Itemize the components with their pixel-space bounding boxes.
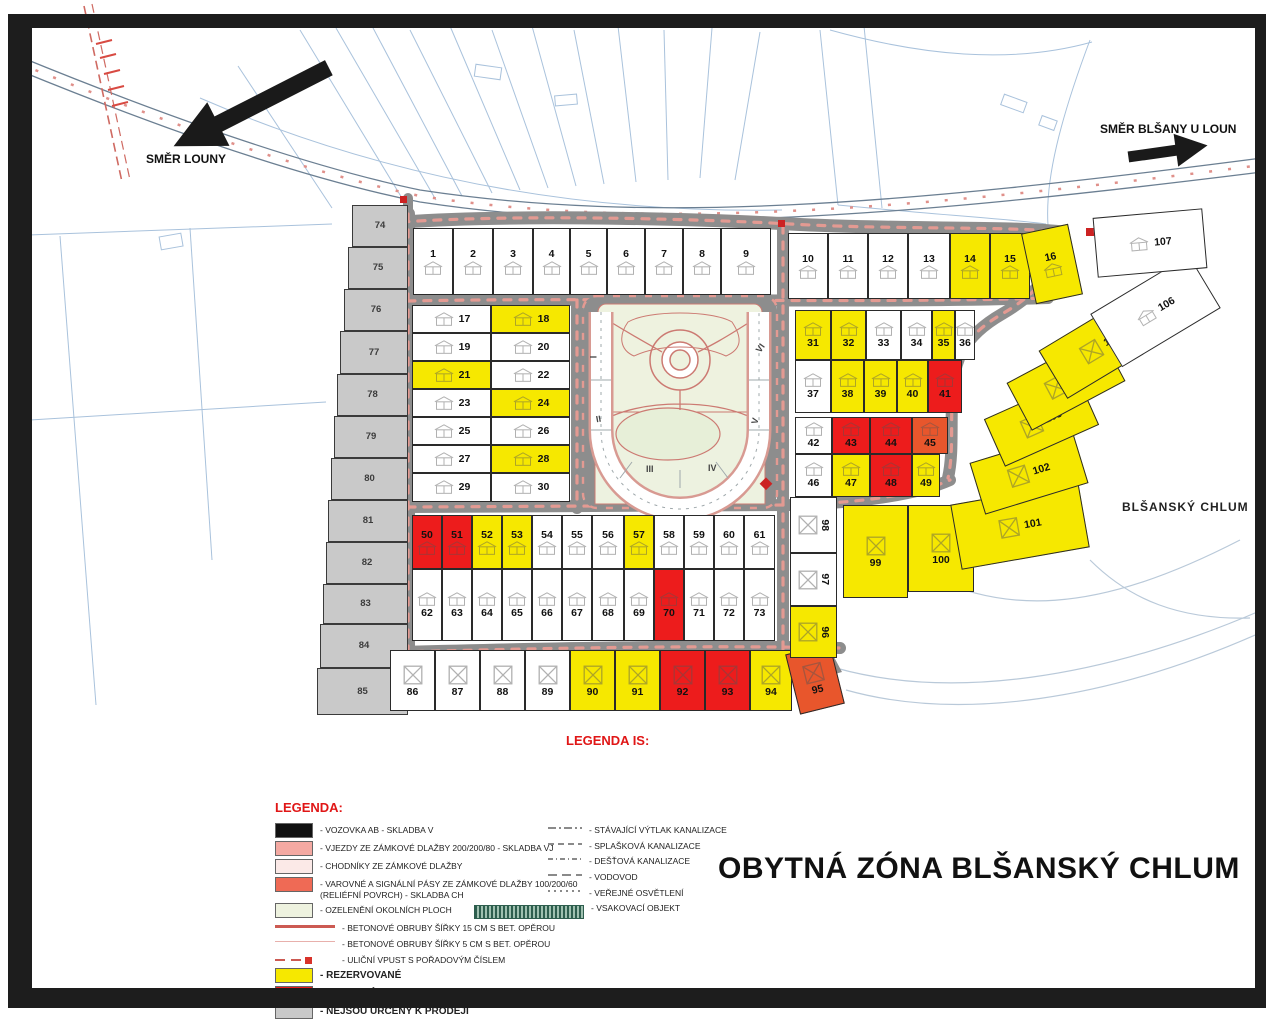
parcel-39: 39 (864, 360, 897, 413)
parcel-number: 19 (459, 342, 471, 353)
parcel-107: 107 (1093, 208, 1208, 277)
parcel-number: 94 (765, 687, 777, 698)
parcel-67: 67 (562, 569, 592, 641)
parcel-88: 88 (480, 650, 525, 711)
parcel-79: 79 (334, 416, 408, 458)
parcel-number: 35 (938, 338, 950, 349)
parcel-number: 53 (511, 530, 523, 541)
legend-item: - REZERVOVANÉ (275, 968, 595, 983)
direction-west-label: SMĚR LOUNY (146, 152, 226, 166)
parcel-number: 98 (819, 519, 830, 531)
parcel-55: 55 (562, 515, 592, 569)
parcel-99: 99 (843, 505, 908, 598)
parcel-44: 44 (870, 417, 912, 454)
parcel-5: 5 (570, 228, 607, 295)
parcel-36: 36 (955, 310, 975, 360)
parcel-45: 45 (912, 417, 948, 454)
parcel-number: 21 (459, 370, 471, 381)
parcel-number: 100 (932, 555, 950, 566)
parcel-number: 99 (870, 558, 882, 569)
parcel-number: 45 (924, 438, 936, 449)
parcel-50: 50 (412, 515, 442, 569)
parcel-number: 91 (632, 687, 644, 698)
parcel-number: 39 (875, 389, 887, 400)
parcel-48: 48 (870, 454, 912, 497)
parcel-16: 16 (1021, 224, 1083, 304)
parcel-90: 90 (570, 650, 615, 711)
parcel-49: 49 (912, 454, 940, 497)
parcel-62: 62 (412, 569, 442, 641)
parcel-51: 51 (442, 515, 472, 569)
parcel-number: 87 (452, 687, 464, 698)
parcel-92: 92 (660, 650, 705, 711)
parcel-number: 27 (459, 454, 471, 465)
parcel-12: 12 (868, 233, 908, 299)
parcel-number: 46 (808, 478, 820, 489)
parcel-number: 12 (882, 254, 894, 265)
parcel-number: 85 (357, 687, 368, 697)
parcel-number: 78 (367, 390, 378, 400)
parcel-21: 21 (412, 361, 491, 389)
parcel-19: 19 (412, 333, 491, 361)
parcel-number: 106 (1156, 295, 1176, 313)
parcel-8: 8 (683, 228, 721, 295)
parcel-32: 32 (831, 310, 866, 360)
parcel-4: 4 (533, 228, 570, 295)
parcel-number: 92 (677, 687, 689, 698)
parcel-24: 24 (491, 389, 570, 417)
parcel-58: 58 (654, 515, 684, 569)
parcel-34: 34 (901, 310, 932, 360)
legend-label: - BETONOVÉ OBRUBY ŠÍŘKY 5 CM S BET. OPĚR… (342, 937, 550, 950)
legend-symbol-dashdot (548, 827, 582, 829)
legend-symbol-dash (548, 843, 582, 845)
legend-item: - STÁVAJÍCÍ VÝTLAK KANALIZACE (548, 823, 808, 836)
parcel-77: 77 (340, 331, 408, 374)
parcel-71: 71 (684, 569, 714, 641)
parcel-number: 84 (359, 641, 370, 651)
legend-label: - VEŘEJNÉ OSVĚTLENÍ (589, 886, 683, 899)
parcel-number: 56 (602, 530, 614, 541)
legend-item: - BETONOVÉ OBRUBY ŠÍŘKY 15 CM S BET. OPĚ… (275, 921, 595, 934)
parcel-number: 51 (451, 530, 463, 541)
parcel-59: 59 (684, 515, 714, 569)
parcel-number: 32 (843, 338, 855, 349)
parcel-28: 28 (491, 445, 570, 473)
legend-item: - NEJSOU URČENY K PRODEJI (275, 1004, 595, 1019)
parcel-23: 23 (412, 389, 491, 417)
legend-label: - STÁVAJÍCÍ VÝTLAK KANALIZACE (589, 823, 727, 836)
parcel-64: 64 (472, 569, 502, 641)
parcel-number: 90 (587, 687, 599, 698)
legend-item: - BETONOVÉ OBRUBY ŠÍŘKY 5 CM S BET. OPĚR… (275, 937, 595, 950)
parcel-43: 43 (832, 417, 870, 454)
parcel-number: 43 (845, 438, 857, 449)
legend-item: - VODOVOD (548, 870, 808, 883)
legend-is-title: LEGENDA IS: (566, 733, 649, 748)
parcel-number: 96 (819, 626, 830, 638)
parcel-number: 26 (538, 426, 550, 437)
parcel-number: 47 (845, 478, 857, 489)
parcel-75: 75 (348, 247, 408, 289)
legend-swatch (275, 986, 313, 1001)
legend-label: - ULIČNÍ VPUST S POŘADOVÝM ČÍSLEM (342, 953, 505, 966)
parcel-42: 42 (795, 417, 832, 454)
parcel-38: 38 (831, 360, 864, 413)
parcel-14: 14 (950, 233, 990, 299)
parcel-number: 31 (807, 338, 819, 349)
parcel-number: 15 (1004, 254, 1016, 265)
parcel-number: 89 (542, 687, 554, 698)
parcel-93: 93 (705, 650, 750, 711)
legend-symbol-dash2 (548, 874, 582, 876)
parcel-number: 61 (754, 530, 766, 541)
parcel-number: 79 (366, 432, 377, 442)
parcel-number: 86 (407, 687, 419, 698)
parcel-53: 53 (502, 515, 532, 569)
legend-label: - SPLAŠKOVÁ KANALIZACE (589, 839, 700, 852)
parcel-number: 72 (723, 608, 735, 619)
site-plan-page: 1234567891011121314151617181920212223242… (0, 0, 1280, 1024)
legend-symbol-inlet (275, 957, 335, 964)
parcel-number: 63 (451, 608, 463, 619)
legend-item: - VOZOVKA AB - SKLADBA V (275, 823, 595, 838)
parcel-number: 58 (663, 530, 675, 541)
parcel-number: 93 (722, 687, 734, 698)
parcel-number: 18 (538, 314, 550, 325)
parcel-number: 88 (497, 687, 509, 698)
legend-item: - SPLAŠKOVÁ KANALIZACE (548, 839, 808, 852)
legend-item: - PRODANÉ (275, 986, 595, 1001)
parcel-number: 23 (459, 398, 471, 409)
parcel-3: 3 (493, 228, 533, 295)
parcel-number: 95 (811, 684, 825, 697)
parcel-number: 101 (1023, 517, 1042, 530)
legend-label: - VJEZDY ZE ZÁMKOVÉ DLAŽBY 200/200/80 - … (320, 841, 554, 854)
parcel-29: 29 (412, 473, 491, 502)
parcel-57: 57 (624, 515, 654, 569)
parcel-60: 60 (714, 515, 744, 569)
parcel-number: 107 (1154, 236, 1172, 248)
parcel-number: 75 (373, 263, 384, 273)
parcel-number: 6 (623, 249, 629, 260)
legend-item: - VJEZDY ZE ZÁMKOVÉ DLAŽBY 200/200/80 - … (275, 841, 595, 856)
parcel-number: 67 (571, 608, 583, 619)
parcel-number: 41 (939, 389, 951, 400)
legend-item: - ULIČNÍ VPUST S POŘADOVÝM ČÍSLEM (275, 953, 595, 966)
parcel-72: 72 (714, 569, 744, 641)
legend-label: - VOZOVKA AB - SKLADBA V (320, 823, 433, 836)
parcel-number: 54 (541, 530, 553, 541)
parcel-number: 1 (430, 249, 436, 260)
parcel-22: 22 (491, 361, 570, 389)
parcel-number: 33 (878, 338, 890, 349)
parcel-number: 69 (633, 608, 645, 619)
legend-item: - VSAKOVACÍ OBJEKT (548, 901, 808, 919)
parcel-number: 57 (633, 530, 645, 541)
parcel-17: 17 (412, 305, 491, 333)
parcel-35: 35 (932, 310, 955, 360)
parcel-82: 82 (326, 542, 408, 584)
parcel-33: 33 (866, 310, 901, 360)
parcel-81: 81 (328, 500, 408, 542)
parcel-31: 31 (795, 310, 831, 360)
parcel-41: 41 (928, 360, 962, 413)
parcel-number: 40 (907, 389, 919, 400)
legend-rows: - VOZOVKA AB - SKLADBA V- VJEZDY ZE ZÁMK… (275, 823, 595, 1019)
parcel-number: 50 (421, 530, 433, 541)
parcel-13: 13 (908, 233, 950, 299)
parcel-number: 14 (964, 254, 976, 265)
park-numeral-I: I (588, 356, 598, 359)
parcel-number: 37 (807, 389, 819, 400)
parcel-number: 24 (538, 398, 550, 409)
parcel-number: 20 (538, 342, 550, 353)
parcel-number: 55 (571, 530, 583, 541)
parcel-number: 62 (421, 608, 433, 619)
parcel-number: 3 (510, 249, 516, 260)
parcel-25: 25 (412, 417, 491, 445)
parcel-number: 49 (920, 478, 932, 489)
parcel-number: 28 (538, 454, 550, 465)
parcel-number: 71 (693, 608, 705, 619)
legend-is: - STÁVAJÍCÍ VÝTLAK KANALIZACE- SPLAŠKOVÁ… (548, 823, 808, 922)
parcel-2: 2 (453, 228, 493, 295)
parcel-76: 76 (344, 289, 408, 331)
parcel-63: 63 (442, 569, 472, 641)
legend-swatch (275, 859, 313, 874)
parcel-number: 97 (819, 574, 830, 586)
parcel-18: 18 (491, 305, 570, 333)
parcel-52: 52 (472, 515, 502, 569)
legend-label: - DEŠŤOVÁ KANALIZACE (589, 854, 690, 867)
legend-label: - CHODNÍKY ZE ZÁMKOVÉ DLAŽBY (320, 859, 462, 872)
legend-item: - VAROVNÉ A SIGNÁLNÍ PÁSY ZE ZÁMKOVÉ DLA… (275, 877, 595, 900)
parcel-number: 36 (959, 338, 971, 349)
parcel-number: 48 (885, 478, 897, 489)
legend-swatch (275, 968, 313, 983)
parcel-number: 25 (459, 426, 471, 437)
parcel-number: 10 (802, 254, 814, 265)
parcel-number: 68 (602, 608, 614, 619)
parcel-number: 52 (481, 530, 493, 541)
parcel-number: 42 (808, 438, 820, 449)
legend-label: - PRODANÉ (320, 986, 376, 1001)
parcel-number: 4 (549, 249, 555, 260)
parcel-70: 70 (654, 569, 684, 641)
parcel-number: 77 (369, 348, 380, 358)
parcel-26: 26 (491, 417, 570, 445)
parcel-number: 9 (743, 249, 749, 260)
parcel-number: 60 (723, 530, 735, 541)
legend-item: - CHODNÍKY ZE ZÁMKOVÉ DLAŽBY (275, 859, 595, 874)
inlet-square-icon (305, 957, 312, 964)
parcel-number: 34 (911, 338, 923, 349)
parcel-40: 40 (897, 360, 928, 413)
legend-symbol-bar (474, 905, 584, 919)
parcel-20: 20 (491, 333, 570, 361)
parcel-61: 61 (744, 515, 775, 569)
park-numeral-III: III (646, 464, 654, 474)
parcel-number: 29 (459, 482, 471, 493)
parcel-number: 38 (842, 389, 854, 400)
parcel-1: 1 (413, 228, 453, 295)
park-numeral-IV: IV (708, 463, 717, 473)
parcel-number: 44 (885, 438, 897, 449)
parcel-46: 46 (795, 454, 832, 497)
parcel-number: 13 (923, 254, 935, 265)
parcel-number: 82 (362, 558, 373, 568)
parcel-83: 83 (323, 584, 408, 624)
legend-symbol-thick (275, 925, 335, 928)
parcel-56: 56 (592, 515, 624, 569)
legend-swatch (275, 877, 313, 892)
parcel-47: 47 (832, 454, 870, 497)
parcel-number: 5 (586, 249, 592, 260)
parcel-66: 66 (532, 569, 562, 641)
legend-label: - OZELENĚNÍ OKOLNÍCH PLOCH (320, 903, 452, 916)
parcel-65: 65 (502, 569, 532, 641)
parcel-number: 70 (663, 608, 675, 619)
area-label: BLŠANSKÝ CHLUM (1122, 500, 1249, 514)
parcel-98: 98 (790, 497, 837, 553)
parcel-73: 73 (744, 569, 775, 641)
parcel-number: 66 (541, 608, 553, 619)
parcel-97: 97 (790, 553, 837, 606)
parcel-87: 87 (435, 650, 480, 711)
parcel-number: 30 (538, 482, 550, 493)
parcel-69: 69 (624, 569, 654, 641)
parcel-number: 7 (661, 249, 667, 260)
legend-symbol-dashdot2 (548, 858, 582, 860)
parcel-96: 96 (790, 606, 837, 658)
legend-item: - VEŘEJNÉ OSVĚTLENÍ (548, 886, 808, 899)
parcel-number: 2 (470, 249, 476, 260)
parcel-number: 102 (1032, 462, 1052, 477)
legend-swatch (275, 841, 313, 856)
parcel-number: 8 (699, 249, 705, 260)
direction-east-label: SMĚR BLŠANY U LOUN (1100, 122, 1236, 136)
parcel-6: 6 (607, 228, 645, 295)
legend-item: - DEŠŤOVÁ KANALIZACE (548, 854, 808, 867)
parcel-68: 68 (592, 569, 624, 641)
parcel-number: 76 (371, 305, 382, 315)
parcel-number: 59 (693, 530, 705, 541)
parcel-number: 74 (375, 221, 386, 231)
legend-label: - REZERVOVANÉ (320, 968, 401, 983)
parcel-number: 17 (459, 314, 471, 325)
parcel-number: 22 (538, 370, 550, 381)
parcel-number: 83 (360, 599, 371, 609)
parcel-number: 65 (511, 608, 523, 619)
legend-label: - BETONOVÉ OBRUBY ŠÍŘKY 15 CM S BET. OPĚ… (342, 921, 555, 934)
parcel-number: 64 (481, 608, 493, 619)
parcel-86: 86 (390, 650, 435, 711)
parcel-91: 91 (615, 650, 660, 711)
parcel-54: 54 (532, 515, 562, 569)
parcel-89: 89 (525, 650, 570, 711)
parcel-number: 81 (363, 516, 374, 526)
parcel-number: 80 (364, 474, 375, 484)
legend-label: - VSAKOVACÍ OBJEKT (591, 901, 680, 914)
parcel-78: 78 (337, 374, 408, 416)
legend-title: LEGENDA: (275, 800, 595, 815)
parcel-number: 73 (754, 608, 766, 619)
legend-swatch (275, 823, 313, 838)
parcel-30: 30 (491, 473, 570, 502)
parcel-7: 7 (645, 228, 683, 295)
parcel-27: 27 (412, 445, 491, 473)
parcel-number: 11 (842, 254, 853, 265)
legend-symbol-thin (275, 941, 335, 942)
parcel-80: 80 (331, 458, 408, 500)
legend-swatch (275, 1004, 313, 1019)
parcel-9: 9 (721, 228, 771, 295)
legend-label: - VODOVOD (589, 870, 638, 883)
legend-symbol-dot (548, 890, 582, 892)
parcel-74: 74 (352, 205, 408, 247)
parcel-37: 37 (795, 360, 831, 413)
parcel-11: 11 (828, 233, 868, 299)
parcel-10: 10 (788, 233, 828, 299)
legend-label: - NEJSOU URČENY K PRODEJI (320, 1004, 469, 1019)
legend-swatch (275, 903, 313, 918)
